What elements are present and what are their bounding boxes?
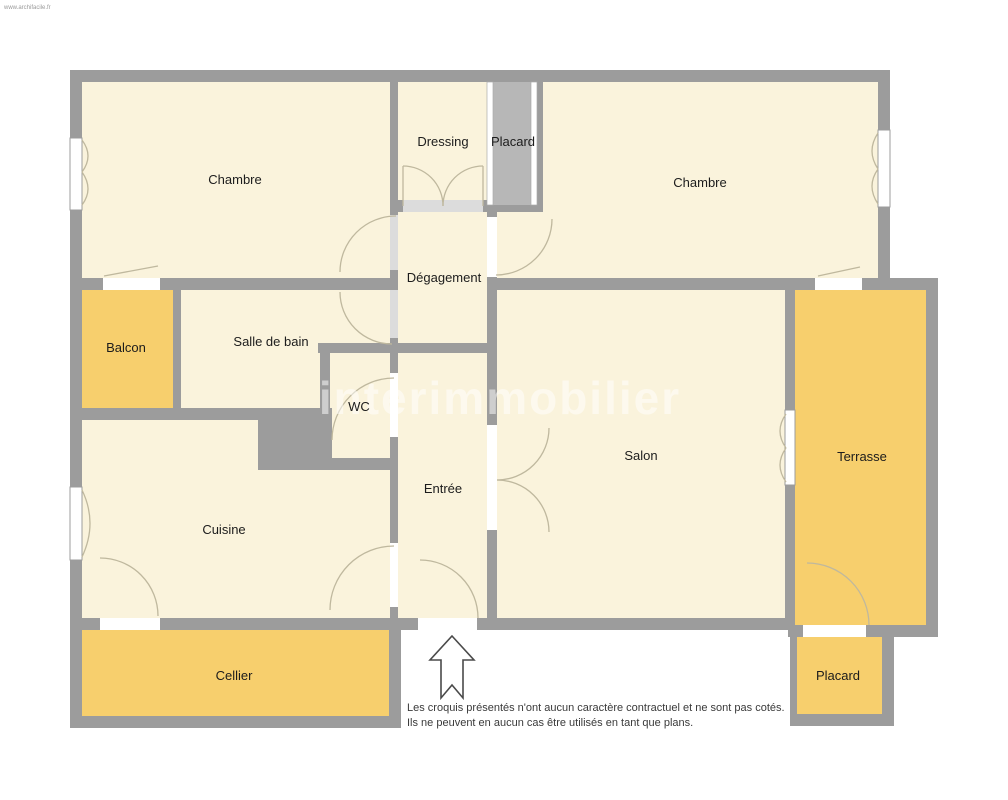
room-label-entree: Entrée <box>424 481 462 496</box>
wall-segment <box>70 408 262 420</box>
wall-segment <box>70 70 890 82</box>
wall-segment <box>537 82 543 212</box>
wall-segment <box>926 278 938 637</box>
wall-segment <box>790 637 797 722</box>
door-opening <box>390 290 398 338</box>
window <box>70 138 82 210</box>
window <box>785 410 795 485</box>
wall-segment <box>882 637 894 722</box>
room-label-cuisine: Cuisine <box>202 522 245 537</box>
disclaimer-line-1: Les croquis présentés n'ont aucun caract… <box>407 702 785 714</box>
door-opening <box>390 215 398 270</box>
room-label-balcon: Balcon <box>106 340 146 355</box>
door-opening <box>487 425 497 530</box>
disclaimer-line-2: Ils ne peuvent en aucun cas être utilisé… <box>407 717 693 729</box>
website-watermark: www.archifacile.fr <box>3 5 51 11</box>
agency-watermark: interimmobilier <box>319 372 681 424</box>
room-label-salle-de-bain: Salle de bain <box>233 334 308 349</box>
wall-segment <box>318 343 497 353</box>
window <box>70 487 82 560</box>
wall-segment <box>390 82 398 205</box>
window <box>878 130 890 207</box>
wall-segment <box>70 630 82 728</box>
room-label-placard-haut: Placard <box>491 134 535 149</box>
terrace-closet-door-opening <box>803 625 866 637</box>
entrance-arrow-icon <box>430 636 474 698</box>
door-opening <box>487 217 497 277</box>
door-opening <box>390 543 398 607</box>
wall-segment <box>389 618 401 728</box>
entrance-door-opening <box>418 618 477 630</box>
room-label-terrasse: Terrasse <box>837 449 887 464</box>
room-label-chambre-2: Chambre <box>673 175 726 190</box>
room-label-degagement: Dégagement <box>407 270 482 285</box>
room-label-salon: Salon <box>624 448 657 463</box>
wall-segment <box>70 716 401 728</box>
room-label-placard-bas: Placard <box>816 668 860 683</box>
cellar-door-opening <box>100 618 160 630</box>
room-label-wc: WC <box>348 399 370 414</box>
wall-segment <box>790 714 894 726</box>
floor-plan: interimmobilier Chambre Dressing Placard… <box>0 0 1008 800</box>
balcony-door-opening <box>103 278 160 290</box>
room-label-dressing: Dressing <box>417 134 468 149</box>
terrace-door-opening <box>815 278 862 290</box>
floor-plan-page: interimmobilier Chambre Dressing Placard… <box>0 0 1008 800</box>
room-label-cellier: Cellier <box>216 668 254 683</box>
room-label-chambre-1: Chambre <box>208 172 261 187</box>
wall-segment <box>173 290 181 408</box>
wall-segment <box>332 458 398 470</box>
disclaimer: Les croquis présentés n'ont aucun caract… <box>407 702 785 729</box>
wall-segment <box>487 278 938 290</box>
